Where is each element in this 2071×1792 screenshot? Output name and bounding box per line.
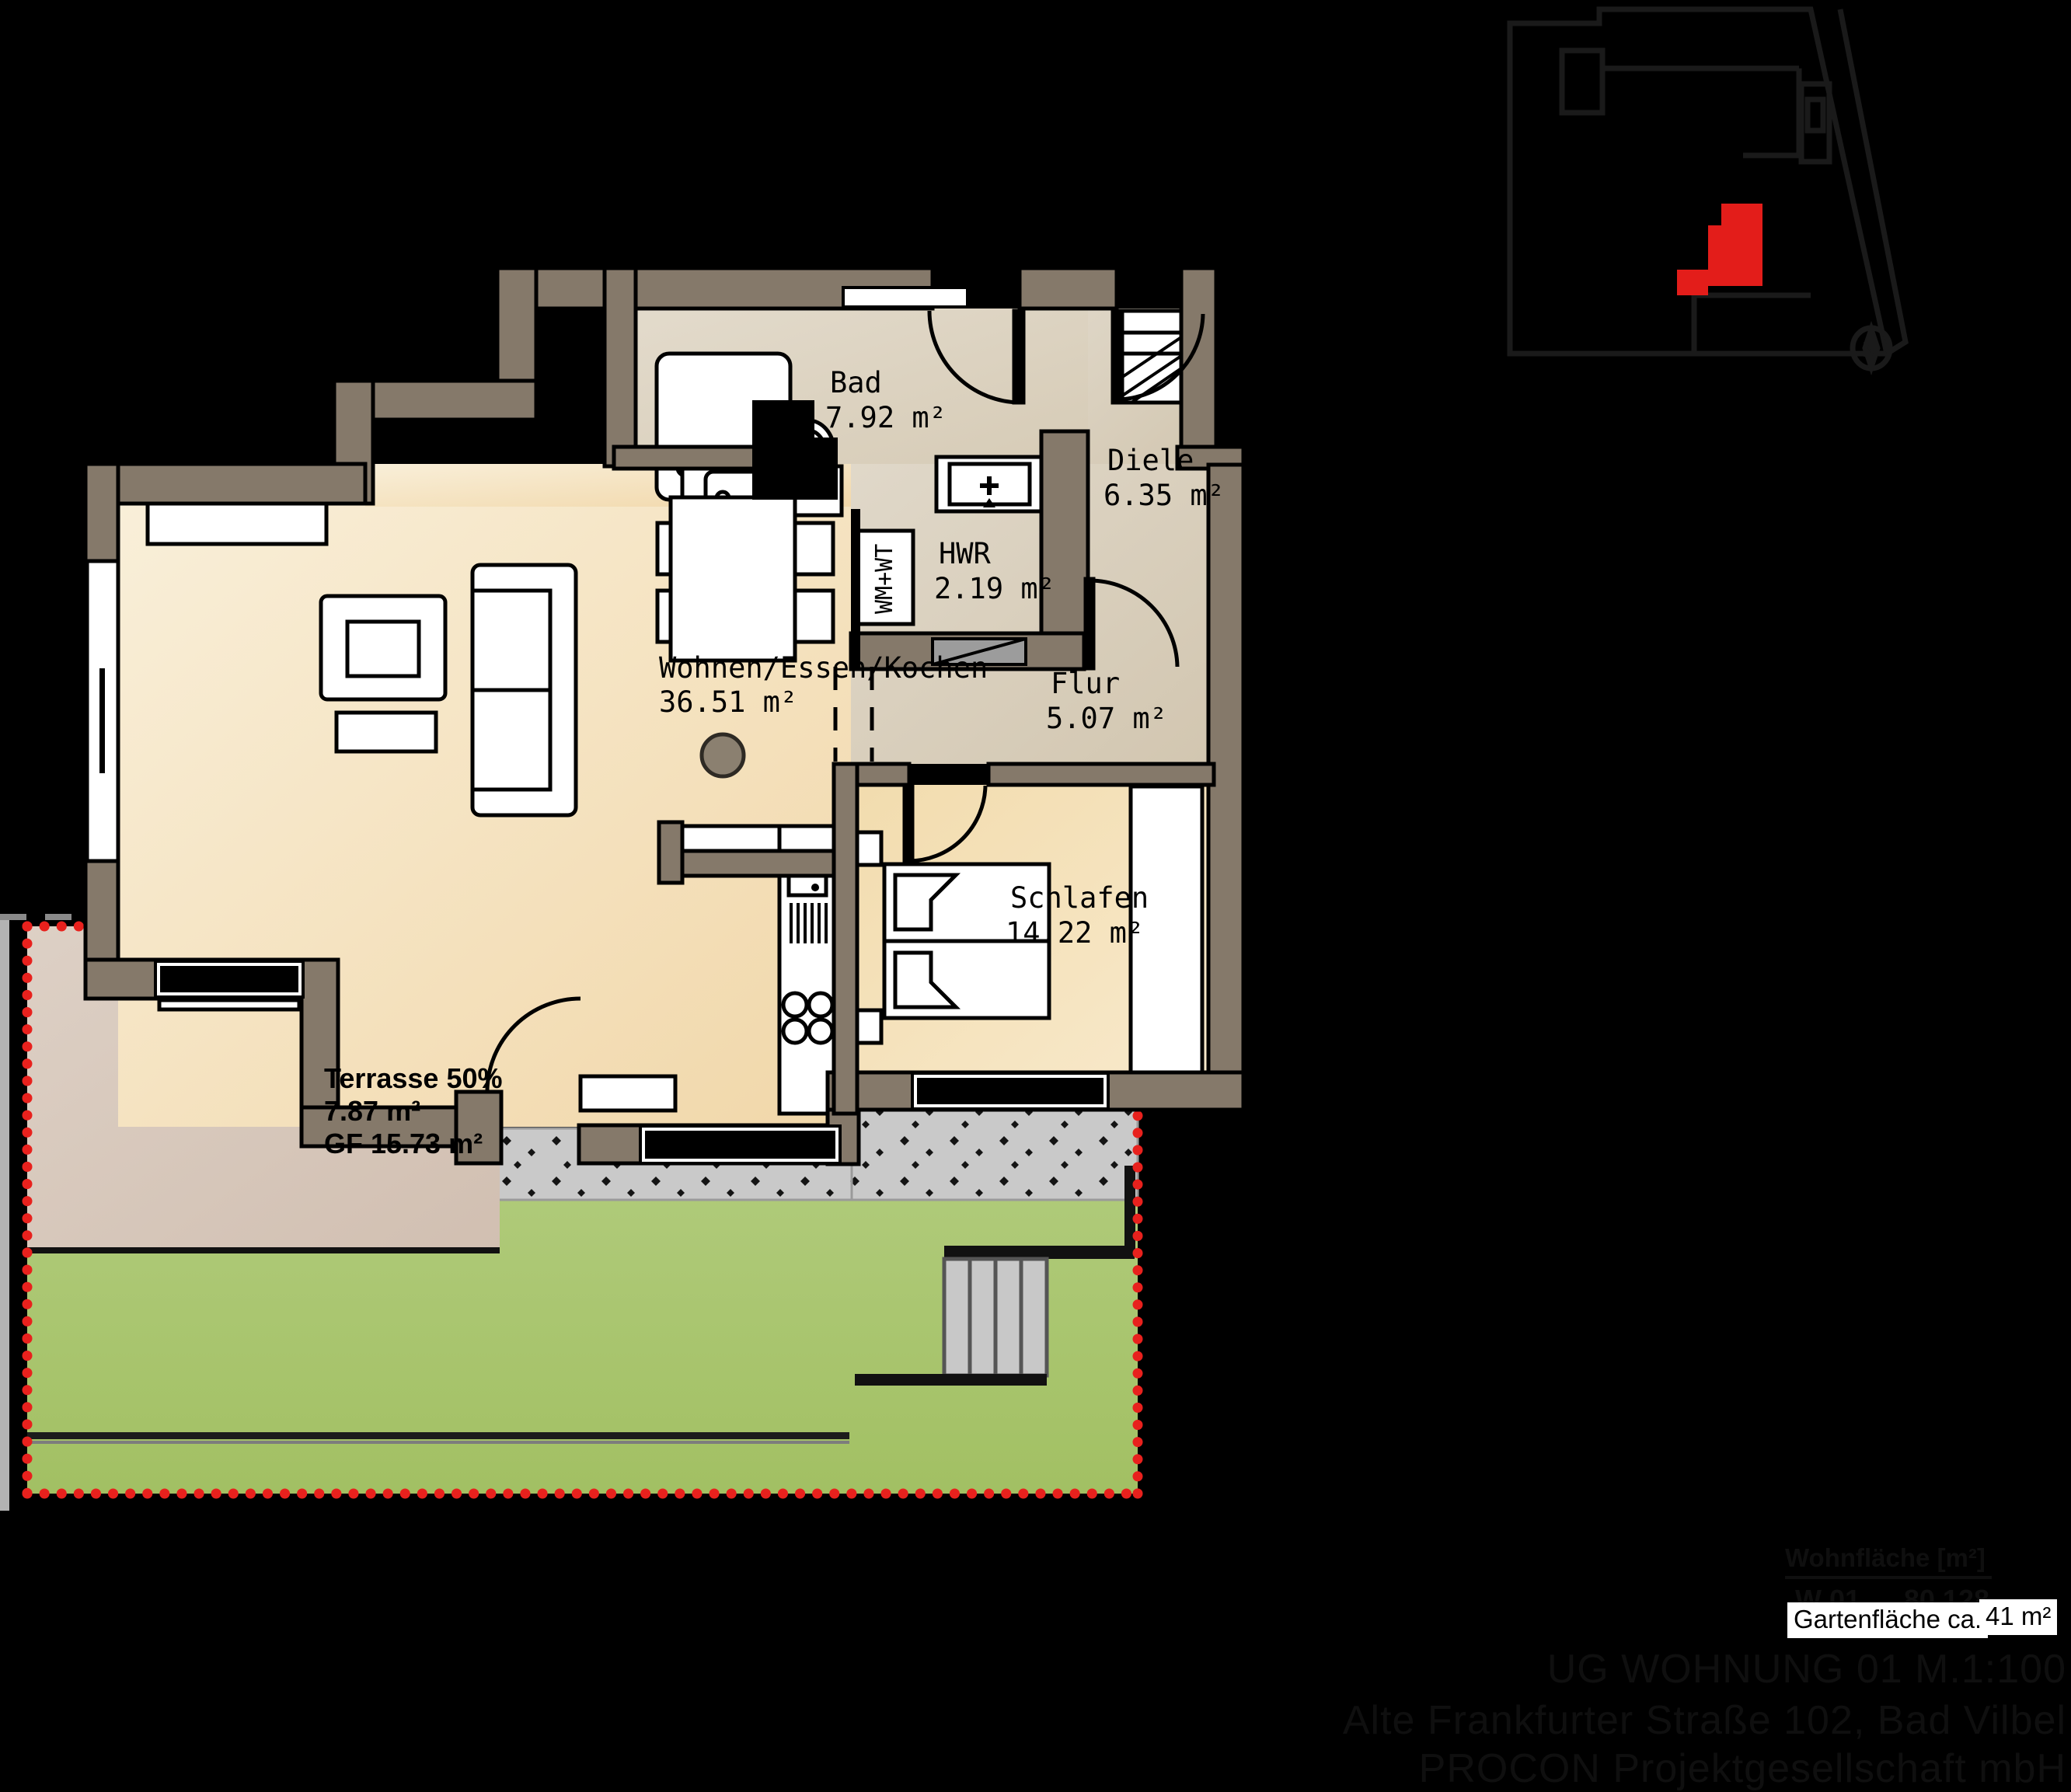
label-flur-area: 5.07 m² <box>1046 702 1167 735</box>
label-bad-area: 7.92 m² <box>825 401 947 434</box>
window-south-bedroom <box>912 1073 1108 1109</box>
garden-area-value: 41 m² <box>1979 1599 2057 1635</box>
label-diele-name: Diele <box>1107 444 1194 477</box>
wall-right-lower <box>1208 465 1243 1111</box>
armchair <box>321 596 445 699</box>
minimap: N <box>1510 9 1905 368</box>
gravel-strip-right <box>852 1107 1138 1200</box>
washbasin <box>936 457 1045 511</box>
garden-wall-line <box>27 1432 849 1439</box>
footer-address: Alte Frankfurter Straße 102, Bad Vilbel <box>1343 1697 2066 1744</box>
wall-right-upper <box>1181 268 1216 451</box>
wall-bedroom-top-right <box>988 764 1214 785</box>
window-south-west <box>155 961 303 997</box>
chimney-duct-ext <box>814 438 838 500</box>
wall-bad-left <box>605 268 636 466</box>
wall-living-bedroom <box>834 764 857 1114</box>
window-bad-top <box>843 288 968 307</box>
diele-wardrobe <box>1117 311 1184 403</box>
minimap-unit-highlight <box>1677 204 1762 295</box>
label-terrasse-2: 7.87 m² <box>324 1095 420 1127</box>
wall-kitchen-cap <box>659 822 682 883</box>
footer-title: UG WOHNUNG 01 M.1:100 <box>1547 1646 2066 1693</box>
label-terrasse-3: GF 15.73 m² <box>324 1128 483 1159</box>
legend-header: Wohnfläche [m²] <box>1785 1543 1992 1579</box>
label-terrasse-1: Terrasse 50% <box>324 1062 503 1094</box>
floorplan-canvas: Bad 7.92 m² Diele 6.35 m² HWR 2.19 m² Fl… <box>0 0 2071 1782</box>
label-hwr-area: 2.19 m² <box>934 572 1055 605</box>
garden-area-label: Gartenfläche ca. <box>1787 1602 1988 1638</box>
side-table <box>336 713 436 751</box>
label-schlafen-name: Schlafen <box>1010 881 1149 915</box>
sidewalk-strip <box>0 920 9 1511</box>
minimap-site-outline <box>1510 9 1887 354</box>
chimney-duct <box>752 400 814 500</box>
wall-top-stub <box>1020 268 1117 309</box>
minimap-partitions <box>1602 68 1811 354</box>
footer-company: PROCON Projektgesellschaft mbH <box>1419 1745 2066 1792</box>
wall-north1 <box>85 464 365 504</box>
window-south-living <box>640 1126 840 1163</box>
label-wohnen-area: 36.51 m² <box>659 685 797 719</box>
window-west <box>87 561 118 861</box>
label-diele-area: 6.35 m² <box>1103 479 1225 512</box>
label-wohnen-name: Wohnen/Essen/Kochen <box>659 651 988 685</box>
garden-wall-shadow <box>27 1441 849 1444</box>
wall-hwr-left-thin <box>851 509 860 668</box>
label-hwr-name: HWR <box>939 537 992 570</box>
compass-n-label: N <box>1862 337 1877 361</box>
minimap-stair-inner <box>1808 99 1823 131</box>
sideboard <box>148 504 326 544</box>
window-sill <box>159 1000 299 1009</box>
wall-bedroom-top-left <box>851 764 909 785</box>
label-bad-name: Bad <box>830 366 882 399</box>
minimap-room <box>1562 51 1602 113</box>
wall-kitchen-knee <box>680 851 835 876</box>
label-washer: WM+WT <box>871 544 898 614</box>
sofa <box>472 565 576 815</box>
round-table <box>702 734 744 776</box>
label-schlafen-area: 14.22 m² <box>1006 916 1144 950</box>
label-flur-name: Flur <box>1051 667 1120 700</box>
